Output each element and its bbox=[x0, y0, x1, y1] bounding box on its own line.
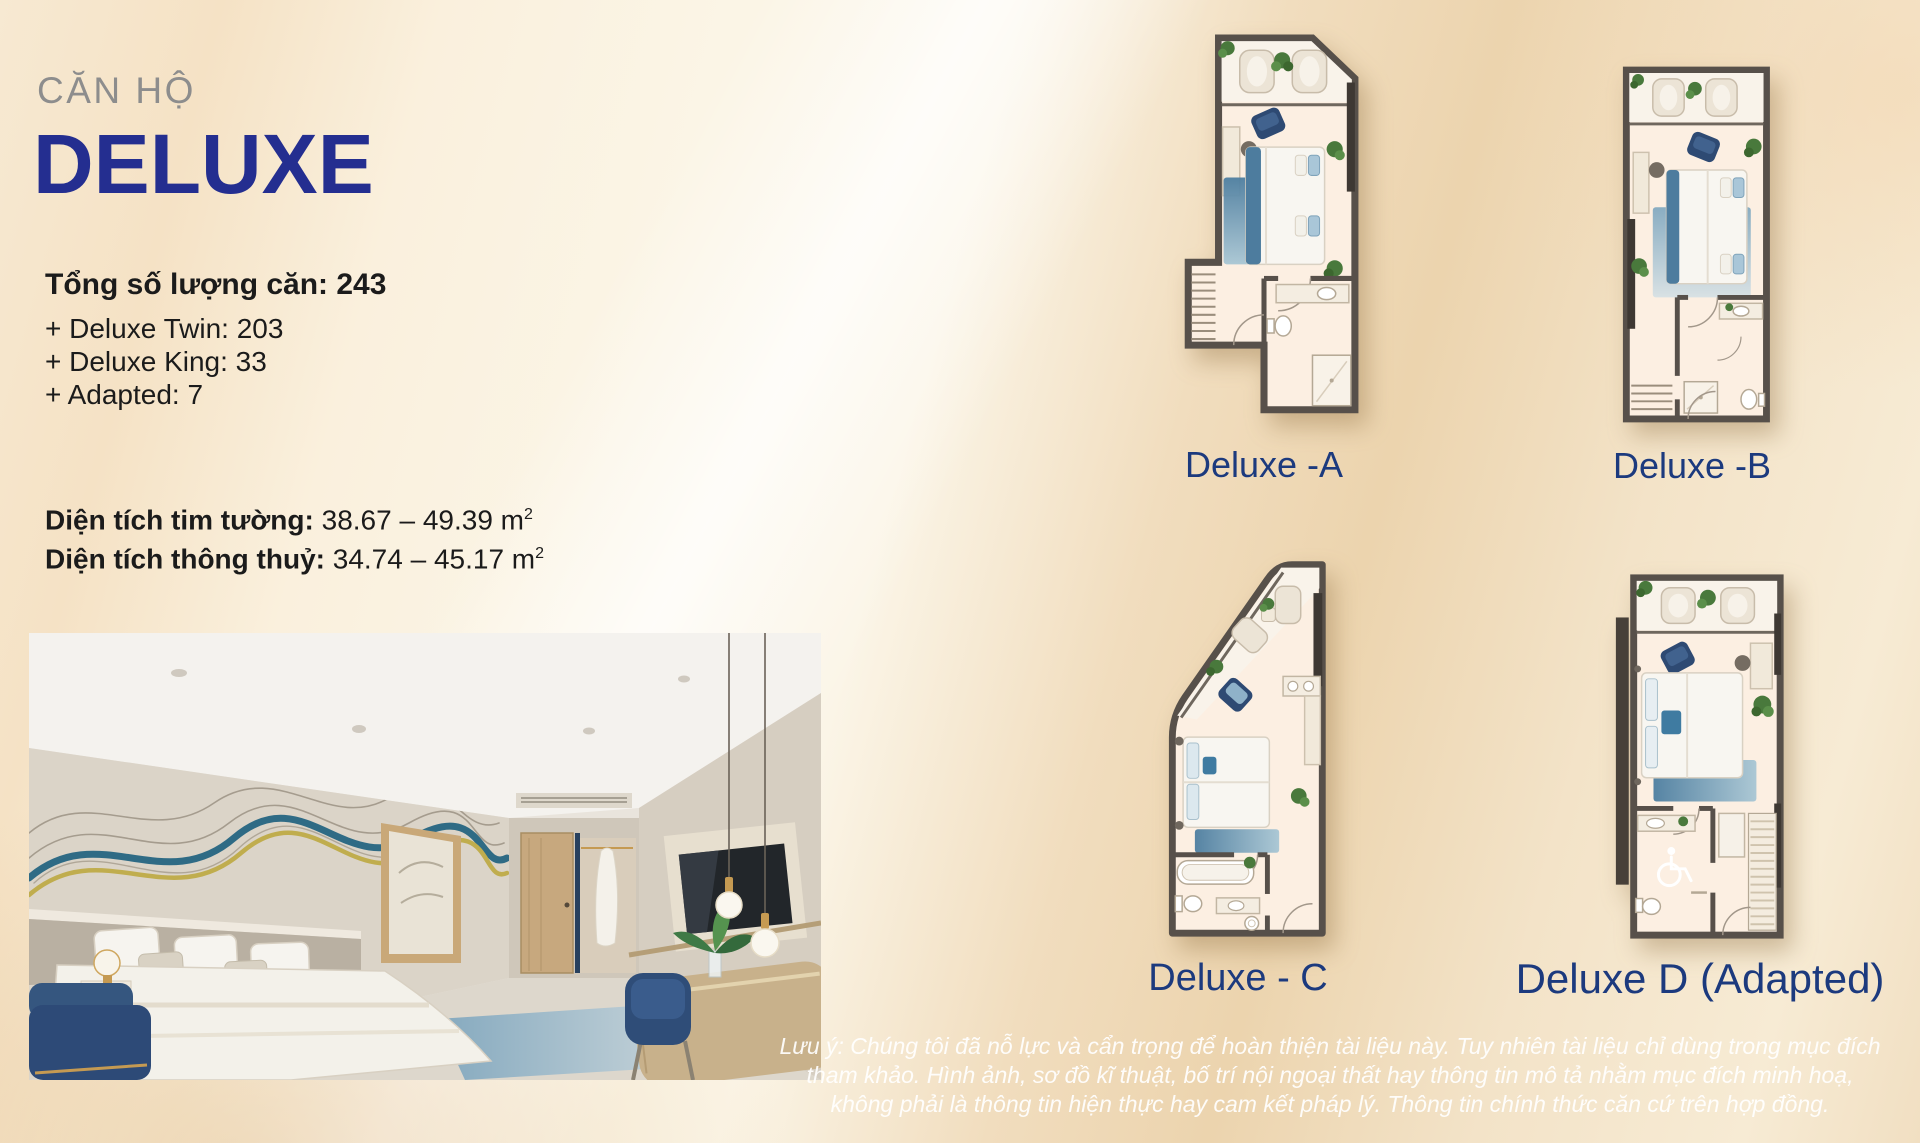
eyebrow-can-ho: CĂN HỘ bbox=[37, 70, 196, 112]
stat-adapted: + Adapted: 7 bbox=[45, 378, 386, 411]
disclaimer: Lưu ý: Chúng tôi đã nỗ lực và cẩn trọng … bbox=[760, 1032, 1900, 1119]
disclaimer-line-3: không phải là thông tin hiện thực hay ca… bbox=[760, 1090, 1900, 1119]
wardrobe-panel-top bbox=[1774, 614, 1781, 675]
floorplan-d-drawing bbox=[1596, 566, 1804, 947]
desk-b bbox=[1633, 152, 1649, 213]
floorplan-deluxe-c: Deluxe - C bbox=[1140, 549, 1336, 941]
bed-a bbox=[1246, 147, 1325, 264]
disclaimer-line-1: Lưu ý: Chúng tôi đã nỗ lực và cẩn trọng … bbox=[760, 1032, 1900, 1061]
floorplan-b-drawing bbox=[1594, 62, 1790, 427]
area-info: Diện tích tim tường: 38.67 – 49.39 m2 Di… bbox=[45, 498, 544, 577]
floorplan-c-drawing bbox=[1140, 549, 1336, 941]
desk-d bbox=[1750, 643, 1772, 689]
bed-c bbox=[1175, 737, 1270, 830]
floorplan-deluxe-d: Deluxe D (Adapted) bbox=[1596, 566, 1804, 947]
ac-vent bbox=[516, 793, 632, 808]
plan-label-d: Deluxe D (Adapted) bbox=[1460, 955, 1920, 1003]
table-lamp bbox=[94, 950, 120, 976]
floorplan-deluxe-a: Deluxe -A bbox=[1163, 30, 1365, 434]
plan-label-c: Deluxe - C bbox=[998, 957, 1478, 1000]
area-net: Diện tích thông thuỷ: 34.74 – 45.17 m2 bbox=[45, 537, 544, 576]
wardrobe-panel bbox=[1627, 219, 1635, 329]
unit-stats: Tổng số lượng căn: 243 + Deluxe Twin: 20… bbox=[45, 268, 386, 411]
stat-deluxe-king: + Deluxe King: 33 bbox=[45, 345, 386, 378]
stats-total: Tổng số lượng căn: 243 bbox=[45, 268, 386, 302]
plan-label-b: Deluxe -B bbox=[1452, 445, 1920, 487]
room-photo bbox=[29, 633, 821, 1080]
room-render bbox=[29, 633, 821, 1080]
luggage-c bbox=[1305, 696, 1321, 765]
plan-label-a: Deluxe -A bbox=[1024, 444, 1504, 486]
floorplan-a-drawing bbox=[1163, 30, 1365, 434]
brochure-page: CĂN HỘ DELUXE Tổng số lượng căn: 243 + D… bbox=[0, 0, 1920, 1143]
rug-c bbox=[1195, 829, 1279, 853]
hanging-dress bbox=[596, 848, 618, 946]
bed-b bbox=[1667, 170, 1747, 284]
bed-d bbox=[1634, 665, 1742, 785]
page-title: DELUXE bbox=[33, 116, 374, 213]
armchair bbox=[29, 983, 151, 1080]
disclaimer-line-2: tham khảo. Hình ảnh, sơ đồ kĩ thuật, bố … bbox=[760, 1061, 1900, 1090]
exterior-shaft bbox=[1616, 617, 1629, 884]
area-gross: Diện tích tim tường: 38.67 – 49.39 m2 bbox=[45, 498, 544, 537]
wardrobe-panel bbox=[1313, 593, 1322, 686]
floorplan-deluxe-b: Deluxe -B bbox=[1594, 62, 1790, 427]
stat-deluxe-twin: + Deluxe Twin: 203 bbox=[45, 312, 386, 345]
wardrobe-panel bbox=[1347, 83, 1355, 192]
